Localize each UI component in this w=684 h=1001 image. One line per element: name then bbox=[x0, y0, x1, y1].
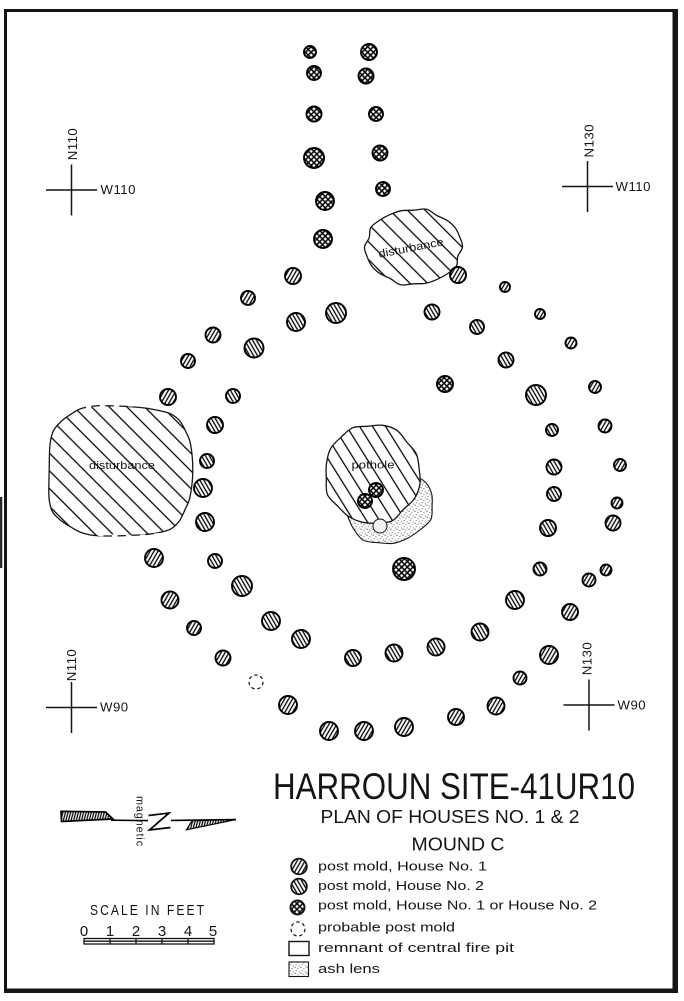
svg-text:PLAN OF HOUSES NO. 1 & 2: PLAN OF HOUSES NO. 1 & 2 bbox=[321, 807, 580, 827]
svg-text:disturbance: disturbance bbox=[89, 460, 155, 472]
svg-text:post mold, House No. 1 or Hous: post mold, House No. 1 or House No. 2 bbox=[318, 898, 597, 913]
svg-text:3: 3 bbox=[158, 923, 166, 940]
svg-text:W110: W110 bbox=[616, 179, 651, 194]
svg-text:SCALE IN FEET: SCALE IN FEET bbox=[90, 902, 206, 919]
svg-text:W110: W110 bbox=[101, 182, 136, 197]
svg-text:pothole: pothole bbox=[352, 460, 395, 472]
svg-text:N110: N110 bbox=[65, 128, 80, 161]
svg-text:4: 4 bbox=[184, 923, 192, 940]
svg-text:N110: N110 bbox=[64, 649, 79, 682]
svg-text:MOUND C: MOUND C bbox=[412, 834, 505, 855]
svg-text:N130: N130 bbox=[580, 642, 595, 676]
svg-text:remnant of central fire pit: remnant of central fire pit bbox=[318, 940, 515, 955]
svg-text:5: 5 bbox=[209, 923, 217, 940]
svg-text:post mold, House No. 1: post mold, House No. 1 bbox=[318, 859, 487, 874]
svg-text:ash lens: ash lens bbox=[318, 961, 380, 976]
svg-text:HARROUN SITE-41UR10: HARROUN SITE-41UR10 bbox=[273, 766, 635, 807]
svg-text:magnetic: magnetic bbox=[134, 796, 146, 847]
svg-text:N130: N130 bbox=[582, 124, 597, 158]
svg-text:W90: W90 bbox=[100, 700, 129, 715]
svg-text:probable post mold: probable post mold bbox=[318, 920, 455, 935]
svg-text:W90: W90 bbox=[618, 698, 647, 713]
svg-text:post mold, House No. 2: post mold, House No. 2 bbox=[318, 878, 484, 893]
svg-text:2: 2 bbox=[132, 923, 140, 940]
svg-text:0: 0 bbox=[80, 923, 88, 940]
svg-text:1: 1 bbox=[106, 923, 114, 940]
